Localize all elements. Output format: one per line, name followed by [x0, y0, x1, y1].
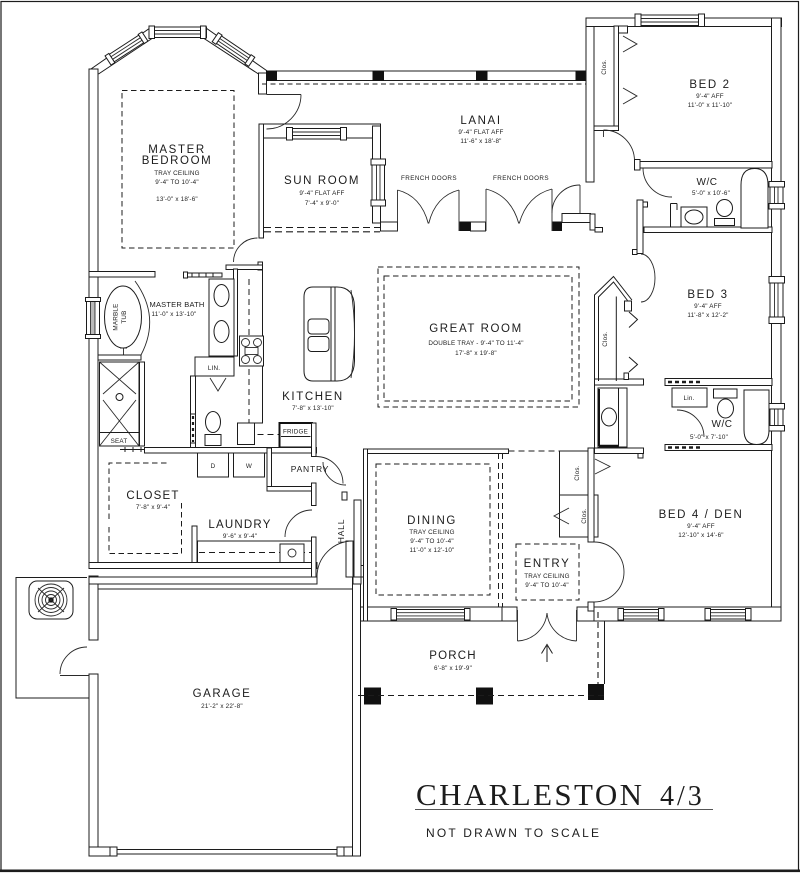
svg-text:FRENCH DOORS: FRENCH DOORS — [401, 175, 457, 182]
svg-text:9'-4" FLAT AFF: 9'-4" FLAT AFF — [299, 190, 344, 197]
svg-text:GREAT ROOM: GREAT ROOM — [429, 323, 523, 335]
svg-text:7'-4" x 9'-0": 7'-4" x 9'-0" — [305, 200, 339, 207]
svg-text:9'-4" TO 10'-4": 9'-4" TO 10'-4" — [155, 179, 199, 186]
svg-text:GARAGE: GARAGE — [193, 688, 252, 700]
svg-text:11'-8" x 12'-2": 11'-8" x 12'-2" — [687, 312, 728, 319]
svg-text:11'-0" x 13'-10": 11'-0" x 13'-10" — [152, 311, 197, 318]
svg-text:DINING: DINING — [407, 515, 457, 527]
svg-text:7'-8" x 13'-10": 7'-8" x 13'-10" — [292, 405, 334, 412]
svg-text:BEDROOM: BEDROOM — [142, 155, 213, 167]
svg-text:NOT DRAWN TO SCALE: NOT DRAWN TO SCALE — [426, 826, 601, 840]
svg-text:TRAY CEILING: TRAY CEILING — [409, 529, 455, 536]
svg-text:CLOSET: CLOSET — [126, 490, 179, 502]
svg-text:Clos.: Clos. — [581, 508, 588, 523]
svg-text:Lin.: Lin. — [684, 395, 695, 402]
svg-text:9'-6" x 9'-4": 9'-6" x 9'-4" — [223, 533, 257, 540]
svg-text:11'-6" x 18'-8": 11'-6" x 18'-8" — [460, 138, 501, 145]
svg-text:HALL: HALL — [336, 519, 346, 543]
svg-text:Clos.: Clos. — [602, 331, 609, 346]
svg-text:W: W — [246, 463, 252, 470]
svg-text:Clos.: Clos. — [601, 59, 608, 74]
svg-text:9'-4" FLAT AFF: 9'-4" FLAT AFF — [458, 129, 503, 136]
svg-text:9'-4" TO 10'-4": 9'-4" TO 10'-4" — [410, 538, 454, 545]
svg-text:MASTER BATH: MASTER BATH — [150, 300, 205, 309]
svg-text:MARBLE: MARBLE — [113, 303, 120, 330]
svg-text:BED 2: BED 2 — [689, 79, 730, 91]
svg-text:5'-0" x 10'-6": 5'-0" x 10'-6" — [692, 190, 730, 197]
svg-text:SEAT: SEAT — [111, 438, 128, 445]
svg-text:DOUBLE TRAY - 9'-4" TO 11'-4": DOUBLE TRAY - 9'-4" TO 11'-4" — [428, 340, 523, 347]
svg-text:6'-8" x 19'-9": 6'-8" x 19'-9" — [434, 665, 472, 672]
svg-text:TRAY CEILING: TRAY CEILING — [524, 573, 570, 580]
svg-text:9'-4" TO 10'-4": 9'-4" TO 10'-4" — [525, 582, 569, 589]
svg-text:W/C: W/C — [697, 177, 718, 188]
svg-text:BED 3: BED 3 — [687, 289, 728, 301]
svg-text:CHARLESTON: CHARLESTON — [416, 777, 644, 812]
svg-text:SUN ROOM: SUN ROOM — [284, 175, 360, 187]
svg-text:FRIDGE: FRIDGE — [283, 429, 308, 436]
svg-text:TUB: TUB — [121, 310, 128, 323]
svg-text:9'-4" AFF: 9'-4" AFF — [696, 93, 724, 100]
svg-text:13'-0" x 18'-6": 13'-0" x 18'-6" — [156, 196, 198, 203]
svg-text:11'-0" x 11'-10": 11'-0" x 11'-10" — [688, 102, 733, 109]
svg-text:Clos.: Clos. — [574, 465, 581, 480]
svg-text:LIN.: LIN. — [208, 365, 220, 372]
svg-text:12'-10" x 14'-6": 12'-10" x 14'-6" — [678, 532, 723, 539]
svg-text:KITCHEN: KITCHEN — [282, 391, 344, 403]
svg-text:9'-4" AFF: 9'-4" AFF — [687, 523, 715, 530]
svg-text:21'-2" x 22'-8": 21'-2" x 22'-8" — [201, 703, 243, 710]
svg-text:LAUNDRY: LAUNDRY — [208, 519, 271, 531]
svg-text:11'-0" x 12'-10": 11'-0" x 12'-10" — [410, 547, 455, 554]
svg-text:D: D — [211, 463, 216, 470]
svg-text:PORCH: PORCH — [429, 650, 477, 662]
svg-text:17'-8" x 19'-8": 17'-8" x 19'-8" — [455, 350, 497, 357]
svg-text:W/C: W/C — [712, 419, 733, 430]
svg-text:4/3: 4/3 — [660, 781, 705, 812]
svg-text:7'-8" x 9'-4": 7'-8" x 9'-4" — [136, 504, 170, 511]
svg-text:5'-0" x 7'-10": 5'-0" x 7'-10" — [690, 434, 728, 441]
svg-text:FRENCH DOORS: FRENCH DOORS — [493, 175, 549, 182]
svg-text:BED 4 / DEN: BED 4 / DEN — [659, 509, 744, 521]
svg-text:9'-4" AFF: 9'-4" AFF — [694, 303, 722, 310]
svg-text:TRAY CEILING: TRAY CEILING — [154, 170, 200, 177]
svg-text:LANAI: LANAI — [460, 115, 501, 127]
svg-text:PANTRY: PANTRY — [291, 464, 330, 474]
svg-text:ENTRY: ENTRY — [524, 558, 571, 570]
